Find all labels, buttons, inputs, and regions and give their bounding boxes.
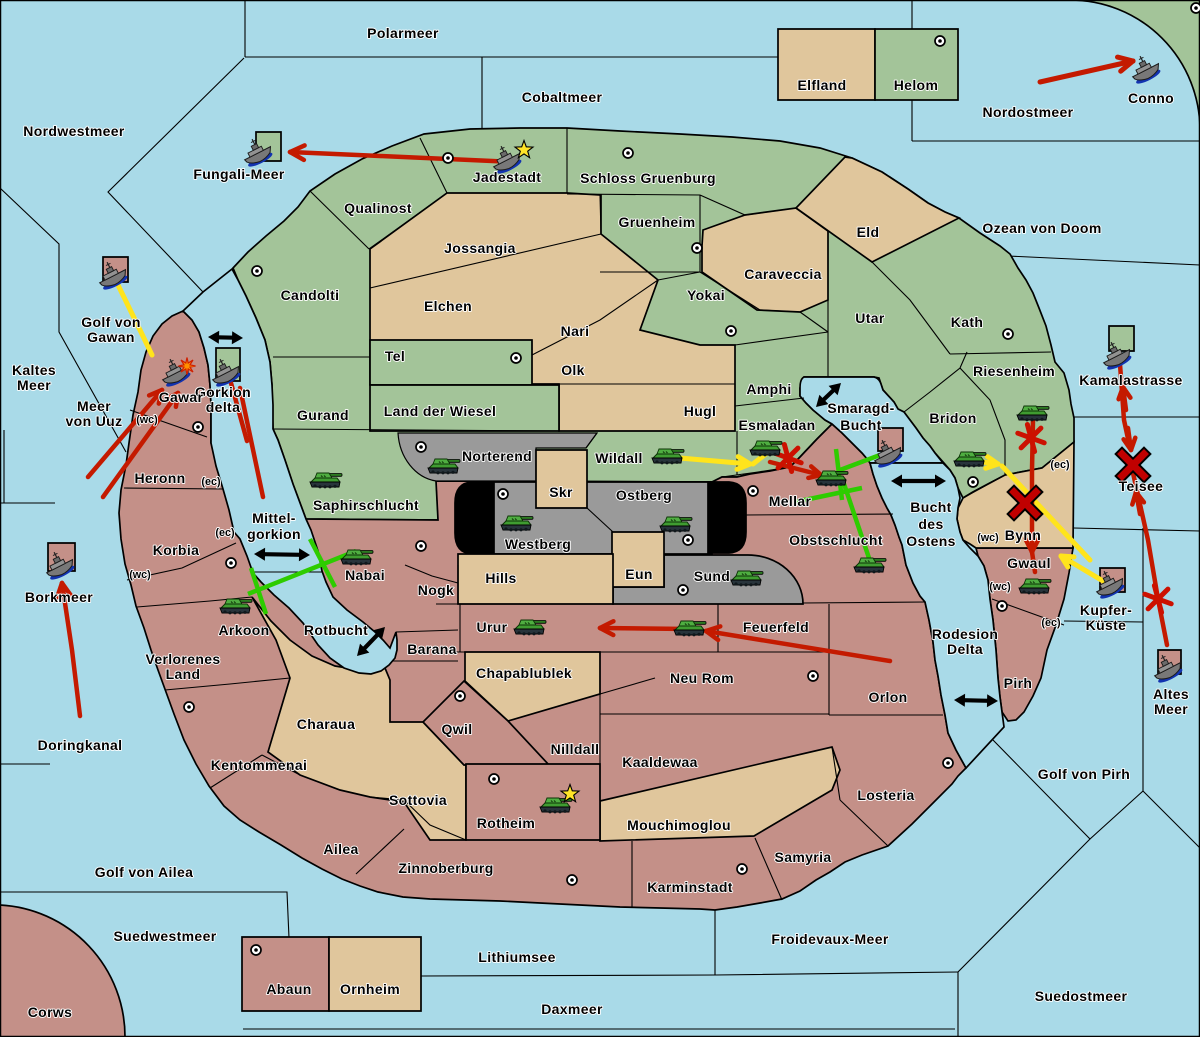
svg-text:delta: delta [206,399,240,415]
svg-text:Eld: Eld [857,224,880,240]
svg-text:Bynn: Bynn [1005,527,1041,543]
svg-text:Nogk: Nogk [418,582,454,598]
svg-text:Westberg: Westberg [505,536,571,552]
svg-text:Ailea: Ailea [323,841,358,857]
svg-text:Olk: Olk [561,362,585,378]
svg-text:Conno: Conno [1128,90,1174,106]
svg-text:Samyria: Samyria [775,849,832,865]
svg-text:Kamalastrasse: Kamalastrasse [1079,372,1182,388]
svg-text:Zinnoberburg: Zinnoberburg [398,860,493,876]
svg-text:Skr: Skr [549,484,573,500]
svg-text:Ozean von Doom: Ozean von Doom [982,220,1101,236]
svg-text:Nilldall: Nilldall [551,741,600,757]
svg-text:Orlon: Orlon [868,689,907,705]
svg-text:Teisee: Teisee [1119,478,1164,494]
svg-text:Froidevaux-Meer: Froidevaux-Meer [771,931,888,947]
svg-text:Ornheim: Ornheim [340,981,400,997]
svg-text:Mittel-: Mittel- [252,510,296,526]
svg-text:Golf von Pirh: Golf von Pirh [1038,766,1130,782]
svg-text:Kaltes: Kaltes [12,362,56,378]
svg-text:Lithiumsee: Lithiumsee [478,949,555,965]
svg-text:des: des [918,516,943,532]
svg-text:Esmaladan: Esmaladan [738,417,815,433]
svg-text:Mouchimoglou: Mouchimoglou [627,817,731,833]
svg-text:Saphirschlucht: Saphirschlucht [313,497,419,513]
svg-text:Elfland: Elfland [797,77,846,93]
svg-text:Gruenheim: Gruenheim [618,214,695,230]
svg-text:Smaragd-: Smaragd- [827,400,894,416]
svg-text:Cobaltmeer: Cobaltmeer [522,89,603,105]
svg-text:Nari: Nari [561,323,590,339]
svg-text:Schloss Gruenburg: Schloss Gruenburg [580,170,716,186]
svg-text:Corws: Corws [28,1004,73,1020]
svg-text:Kupfer-: Kupfer- [1080,602,1132,618]
svg-text:Sund: Sund [694,568,730,584]
svg-text:Sottovia: Sottovia [389,792,447,808]
svg-text:Fungali-Meer: Fungali-Meer [193,166,285,182]
svg-text:Eun: Eun [625,566,653,582]
svg-text:Delta: Delta [947,641,983,657]
svg-text:Mellar: Mellar [769,493,812,509]
svg-text:Land der Wiesel: Land der Wiesel [384,403,497,419]
svg-text:Land: Land [166,666,201,682]
svg-text:(wc): (wc) [136,414,158,426]
svg-text:Utar: Utar [855,310,885,326]
svg-text:Polarmeer: Polarmeer [367,25,439,41]
svg-text:Yokai: Yokai [687,287,725,303]
svg-text:Suedwestmeer: Suedwestmeer [113,928,216,944]
svg-text:Gwaul: Gwaul [1007,555,1051,571]
svg-text:von Uuz: von Uuz [66,413,123,429]
svg-text:(wc): (wc) [129,569,151,581]
svg-text:(ec): (ec) [1041,617,1061,629]
svg-text:(wc): (wc) [989,581,1011,593]
svg-text:Karminstadt: Karminstadt [647,879,733,895]
svg-text:Barana: Barana [407,641,457,657]
svg-text:Abaun: Abaun [266,981,311,997]
svg-text:Kaaldewaa: Kaaldewaa [622,754,698,770]
svg-text:Rotbucht: Rotbucht [304,622,368,638]
svg-text:Urur: Urur [477,619,508,635]
svg-text:Suedostmeer: Suedostmeer [1035,988,1128,1004]
svg-text:Feuerfeld: Feuerfeld [743,619,809,635]
svg-text:Candolti: Candolti [281,287,340,303]
svg-text:Bucht: Bucht [840,417,881,433]
svg-text:Rodesion: Rodesion [932,626,999,642]
svg-text:Hills: Hills [485,570,516,586]
svg-text:Meer: Meer [1154,701,1188,717]
svg-text:Gorkion: Gorkion [195,384,251,400]
svg-text:Ostens: Ostens [906,533,956,549]
svg-text:Gawan: Gawan [87,329,135,345]
svg-text:Bucht: Bucht [910,499,951,515]
svg-text:Losteria: Losteria [857,787,914,803]
svg-text:gorkion: gorkion [247,526,301,542]
svg-text:Caraveccia: Caraveccia [744,266,821,282]
svg-text:Qualinost: Qualinost [344,200,412,216]
svg-text:Meer: Meer [77,398,111,414]
svg-text:(wc): (wc) [977,532,999,544]
svg-text:Nordostmeer: Nordostmeer [983,104,1074,120]
svg-text:Verlorenes: Verlorenes [145,651,220,667]
svg-text:Doringkanal: Doringkanal [38,737,123,753]
svg-text:(ec): (ec) [201,476,221,488]
svg-text:Golf von: Golf von [81,314,141,330]
svg-text:Qwil: Qwil [442,721,473,737]
svg-text:Helom: Helom [894,77,939,93]
svg-text:Altes: Altes [1153,686,1189,702]
svg-text:Nordwestmeer: Nordwestmeer [23,123,125,139]
svg-text:Nabai: Nabai [345,567,385,583]
svg-text:Riesenheim: Riesenheim [973,363,1055,379]
svg-text:Wildall: Wildall [595,450,642,466]
svg-text:Küste: Küste [1086,617,1127,633]
svg-text:Hugl: Hugl [684,403,717,419]
svg-text:(ec): (ec) [215,527,235,539]
svg-text:Pirh: Pirh [1004,675,1033,691]
svg-text:Jossangia: Jossangia [444,240,516,256]
svg-text:Jadestadt: Jadestadt [473,169,542,185]
svg-text:Rotheim: Rotheim [477,815,535,831]
svg-text:Elchen: Elchen [424,298,472,314]
svg-text:Kath: Kath [951,314,984,330]
svg-text:Neu Rom: Neu Rom [670,670,734,686]
svg-text:(ec): (ec) [1050,459,1070,471]
svg-text:Heronn: Heronn [134,470,185,486]
svg-text:Tel: Tel [385,348,405,364]
svg-text:Obstschlucht: Obstschlucht [789,532,883,548]
svg-text:Borkmeer: Borkmeer [25,589,93,605]
svg-text:Daxmeer: Daxmeer [541,1001,603,1017]
svg-text:Meer: Meer [17,377,51,393]
svg-text:Gurand: Gurand [297,407,349,423]
svg-text:Amphi: Amphi [746,381,791,397]
svg-text:Charaua: Charaua [297,716,355,732]
svg-text:Kentommenai: Kentommenai [211,757,307,773]
svg-text:Ostberg: Ostberg [616,487,672,503]
svg-text:Arkoon: Arkoon [218,622,269,638]
svg-text:Norterend: Norterend [462,448,532,464]
svg-text:Golf von Ailea: Golf von Ailea [95,864,194,880]
svg-text:Chapablublek: Chapablublek [476,665,572,681]
svg-text:Gawar: Gawar [159,389,204,405]
svg-text:Korbia: Korbia [153,542,199,558]
svg-text:Bridon: Bridon [929,410,976,426]
